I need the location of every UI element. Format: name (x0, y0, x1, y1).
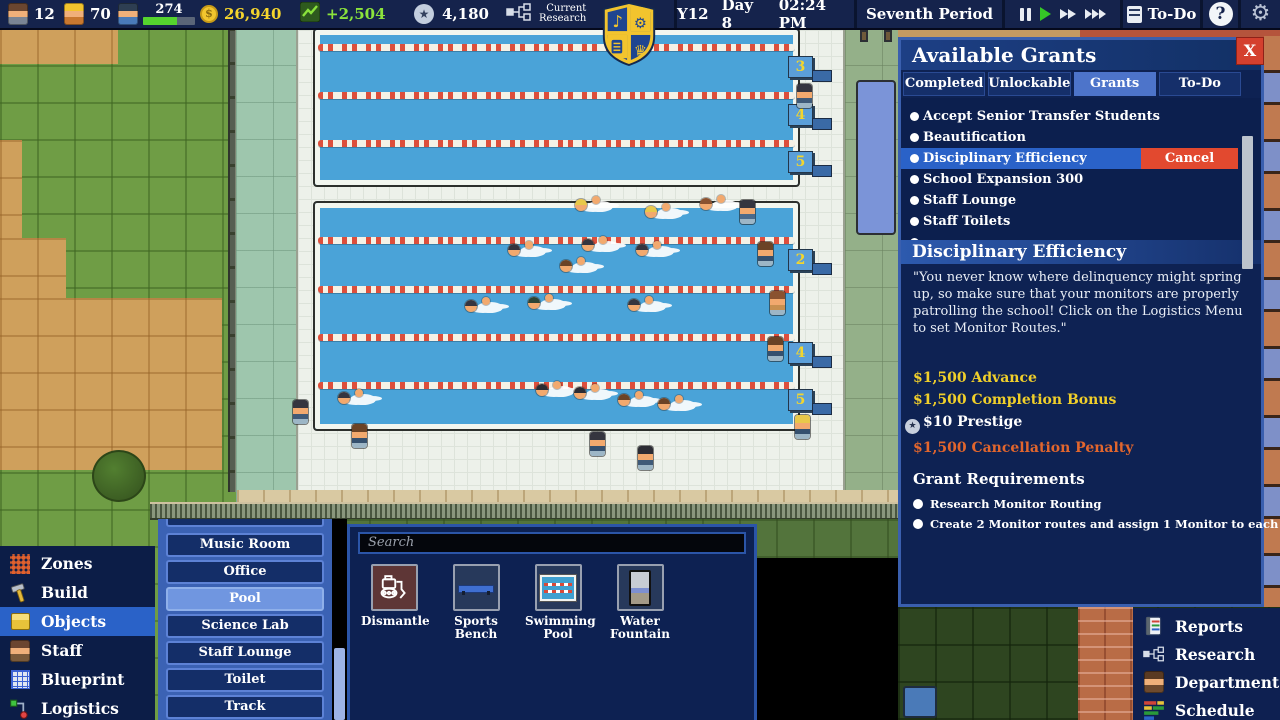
grant-cancellation-penalty: $1,500 Cancellation Penalty (913, 440, 1251, 456)
research-label: Current Research (539, 4, 586, 24)
time-label: 02:24 PM (779, 0, 854, 32)
objects-icon (8, 610, 32, 634)
research-icon (506, 3, 532, 25)
grants-list-scrollbar[interactable] (1242, 136, 1253, 269)
resource-builders: 70 (64, 0, 111, 28)
game-screen: 345245 12 70 274 (0, 0, 1280, 720)
todo-label: To-Do (1148, 5, 1197, 23)
pause-button[interactable] (1020, 8, 1031, 21)
grant-requirements-title: Grant Requirements (913, 470, 1255, 488)
standing-person (740, 200, 755, 224)
build-menu-item-zones[interactable]: Zones (0, 549, 155, 578)
grant-description: "You never know where delinquency might … (901, 264, 1261, 342)
swimmer (574, 386, 612, 401)
standing-person (797, 84, 812, 108)
reports-icon (1143, 615, 1165, 637)
system-menu-item-schedule[interactable]: Schedule (1133, 696, 1280, 720)
object-item-swimming-pool[interactable]: Swimming Pool (526, 564, 590, 641)
current-research[interactable]: Current Research (506, 0, 586, 28)
object-tiles: Dismantle Sports Bench Swimming Pool Wat… (350, 554, 754, 641)
fence-vertical (228, 28, 236, 492)
system-menu-item-research[interactable]: Research (1133, 640, 1280, 668)
dirt-patch (0, 140, 22, 240)
swimmer (560, 259, 598, 274)
grant-list-item[interactable]: Staff Toilets (901, 211, 1261, 232)
lane-number-plaque: 5 (788, 389, 813, 411)
lane-number-plaque: 2 (788, 249, 813, 271)
student-capacity-bar (143, 17, 195, 25)
build-icon (8, 581, 32, 605)
student-icon (118, 3, 138, 25)
department-icon (1143, 671, 1165, 693)
blueprint-icon (8, 668, 32, 692)
swimmer (528, 296, 566, 311)
dirt-patch (0, 238, 66, 300)
swimmer (645, 205, 683, 220)
svg-text:⚙: ⚙ (634, 16, 647, 32)
objects-panel: Search Dismantle Sports Bench Swimming P… (347, 524, 757, 720)
swimmer (575, 198, 613, 213)
lane-rope (318, 140, 795, 147)
fastest-forward-button[interactable] (1085, 9, 1106, 19)
bullet-icon (910, 217, 919, 226)
lane-rope (318, 92, 795, 99)
swimmer (636, 243, 674, 258)
schedule-icon (1143, 699, 1165, 720)
swimmer (658, 397, 696, 412)
resource-prestige: ★ 4,180 (414, 0, 489, 28)
room-menu-item-office[interactable]: Office (166, 560, 324, 584)
prop-box (903, 686, 937, 718)
build-menu-item-staff[interactable]: Staff (0, 636, 155, 665)
room-menu-scroll-thumb[interactable] (334, 648, 345, 720)
close-button[interactable]: X (1236, 37, 1264, 65)
system-menu-label: Reports (1175, 617, 1243, 636)
staff-icon (8, 639, 32, 663)
todo-button[interactable]: To-Do (1120, 0, 1200, 28)
cancel-grant-button[interactable]: Cancel (1141, 148, 1238, 169)
standing-person (758, 242, 773, 266)
gear-icon: ⚙ (1251, 1, 1271, 27)
todo-list-icon (1127, 6, 1142, 23)
grant-requirements: Grant Requirements Research Monitor Rout… (913, 470, 1255, 534)
poolside-floor (236, 28, 296, 506)
build-menu-item-objects[interactable]: Objects (0, 607, 155, 636)
grant-advance: $1,500 Advance (913, 370, 1251, 386)
starting-block (812, 165, 832, 177)
grant-list-item[interactable]: Staff Lounge (901, 190, 1261, 211)
standing-person (638, 446, 653, 470)
swimming-pool-icon (535, 564, 582, 611)
starting-block (812, 356, 832, 368)
swimmer (582, 238, 620, 253)
grants-panel: Available Grants X CompletedUnlockableGr… (898, 37, 1264, 607)
fast-forward-button[interactable] (1060, 9, 1076, 19)
standing-person (795, 415, 810, 439)
swimmer (628, 298, 666, 313)
requirement-item: Research Monitor Routing (913, 494, 1255, 514)
object-item-dismantle[interactable]: Dismantle (362, 564, 426, 641)
prestige-star-icon: ★ (414, 4, 434, 24)
grants-tab-grants[interactable]: Grants (1074, 72, 1156, 96)
swimmer (700, 197, 738, 212)
dirt-patch (0, 298, 222, 470)
period-label: Seventh Period (866, 5, 993, 23)
grant-rewards: $1,500 Advance $1,500 Completion Bonus ★… (913, 370, 1251, 462)
swimmer (536, 383, 574, 398)
bullet-icon (910, 175, 919, 184)
student-count: 274 (143, 3, 195, 17)
resource-students: 274 (118, 0, 195, 28)
help-icon: ? (1209, 2, 1233, 26)
bullet-icon (910, 196, 919, 205)
school-crest: ♪ ⚙ ♛ (598, 1, 660, 67)
prestige-amount: 4,180 (442, 5, 489, 23)
system-menu: ReportsResearchDepartmentSchedule (1133, 608, 1280, 720)
standing-person (770, 291, 785, 315)
system-menu-label: Schedule (1175, 701, 1255, 720)
sports-bench-icon (453, 564, 500, 611)
money-amount: 26,940 (224, 5, 281, 23)
lane-rope (318, 44, 795, 51)
grant-list-item[interactable]: CancelDisciplinary Efficiency (901, 148, 1141, 169)
income-chart-icon (300, 2, 320, 26)
lane-number-plaque: 3 (788, 56, 813, 78)
build-menu-item-blueprint[interactable]: Blueprint (0, 665, 155, 694)
teacher-icon (8, 3, 28, 25)
swimmer (338, 391, 376, 406)
build-menu-label: Build (41, 583, 88, 602)
grants-tab-unlockable[interactable]: Unlockable (988, 72, 1070, 96)
grants-tab-completed[interactable]: Completed (903, 72, 985, 96)
build-menu-label: Objects (41, 612, 106, 631)
build-menu: ZonesBuildObjectsStaffBlueprintLogistics (0, 546, 155, 720)
bench-leg (884, 30, 892, 42)
bullet-icon (910, 238, 919, 240)
swimming-pool-top[interactable] (313, 28, 800, 187)
year-label: Y12 (677, 5, 709, 23)
bullet-icon (910, 154, 919, 163)
room-menu-scroll-track (332, 519, 347, 720)
room-menu-item-track[interactable]: Track (166, 695, 324, 719)
teacher-count: 12 (34, 5, 55, 23)
build-menu-label: Blueprint (41, 670, 124, 689)
student-capacity-fill (143, 17, 177, 25)
bullet-icon (910, 133, 919, 142)
grants-panel-title: Available Grants (901, 40, 1261, 70)
lane-rope (318, 237, 795, 244)
lane-rope (318, 286, 795, 293)
room-menu-item-pool[interactable]: Pool (166, 587, 324, 611)
zones-icon (8, 552, 32, 576)
system-menu-label: Department (1175, 673, 1279, 692)
swimmer (618, 393, 656, 408)
grants-tabs: CompletedUnlockableGrantsTo-Do (901, 70, 1261, 98)
room-category-menu: Music RoomOfficePoolScience LabStaff Lou… (158, 519, 332, 720)
lane-number-plaque: 5 (788, 151, 813, 173)
starting-block (812, 263, 832, 275)
settings-button[interactable]: ⚙ (1238, 0, 1280, 28)
resource-teachers: 12 (8, 0, 55, 28)
search-input[interactable]: Search (358, 532, 746, 554)
income-delta: +2,504 (326, 5, 386, 23)
build-menu-label: Staff (41, 641, 82, 660)
brick-wall (1078, 607, 1133, 720)
room-menu-item-staff-lounge[interactable]: Staff Lounge (166, 641, 324, 665)
day-label: Day 8 (722, 0, 766, 32)
grant-list-item-partial[interactable] (901, 232, 1261, 240)
grant-list-item[interactable]: School Expansion 300 (901, 169, 1261, 190)
tree (92, 450, 146, 502)
swimmer (465, 299, 503, 314)
grant-list-item[interactable]: Accept Senior Transfer Students (901, 106, 1261, 127)
dismantle-icon (371, 564, 418, 611)
student-capacity: 274 (143, 3, 195, 25)
standing-person (768, 337, 783, 361)
system-menu-label: Research (1175, 645, 1255, 664)
panel-gap (757, 558, 898, 720)
requirement-item: Create 2 Monitor routes and assign 1 Mon… (913, 514, 1255, 534)
grant-prestige: ★$10 Prestige (913, 414, 1251, 434)
starting-block (812, 118, 832, 130)
object-item-water-fountain[interactable]: Water Fountain (608, 564, 672, 641)
grant-completion-bonus: $1,500 Completion Bonus (913, 392, 1251, 408)
bench-leg (860, 30, 868, 42)
swimmer (508, 243, 546, 258)
poolside-bench (856, 80, 896, 235)
room-menu-item-science-lab[interactable]: Science Lab (166, 614, 324, 638)
grants-tab-to-do[interactable]: To-Do (1159, 72, 1241, 96)
coin-icon: $ (200, 5, 218, 23)
bullet-icon (913, 519, 923, 529)
build-menu-label: Zones (41, 554, 93, 573)
help-button[interactable]: ? (1200, 0, 1238, 28)
build-menu-item-logistics[interactable]: Logistics (0, 694, 155, 720)
builder-icon (64, 3, 84, 25)
build-menu-label: Logistics (41, 699, 119, 718)
grant-list-item[interactable]: Beautification (901, 127, 1261, 148)
svg-text:♪: ♪ (613, 12, 624, 31)
standing-person (293, 400, 308, 424)
standing-person (590, 432, 605, 456)
play-button[interactable] (1040, 7, 1051, 21)
room-menu-item-toilet[interactable]: Toilet (166, 668, 324, 692)
clock: Y12 Day 8 02:24 PM (674, 0, 854, 28)
speed-controls (1002, 0, 1120, 28)
lane-number-plaque: 4 (788, 342, 813, 364)
object-item-sports-bench[interactable]: Sports Bench (444, 564, 508, 641)
build-menu-item-build[interactable]: Build (0, 578, 155, 607)
system-menu-item-department[interactable]: Department (1133, 668, 1280, 696)
standing-person (352, 424, 367, 448)
starting-block (812, 403, 832, 415)
bullet-icon (910, 112, 919, 121)
water-fountain-icon (617, 564, 664, 611)
grants-list: Accept Senior Transfer StudentsBeautific… (901, 98, 1261, 240)
room-menu-item-music-room[interactable]: Music Room (166, 533, 324, 557)
bullet-icon (913, 499, 923, 509)
room-menu-item-partial[interactable] (166, 519, 324, 527)
prestige-star-icon: ★ (905, 419, 920, 434)
period-indicator: Seventh Period (854, 0, 1002, 28)
resource-income: +2,504 (300, 0, 386, 28)
builder-count: 70 (90, 5, 111, 23)
starting-block (812, 70, 832, 82)
grant-detail-title: Disciplinary Efficiency (901, 240, 1261, 264)
lane-rope (318, 334, 795, 341)
resource-money: $ 26,940 (200, 0, 281, 28)
dirt-patch (0, 28, 118, 64)
research-icon (1143, 643, 1165, 665)
fence-horizontal (150, 502, 903, 520)
system-menu-item-reports[interactable]: Reports (1133, 612, 1280, 640)
logistics-icon (8, 697, 32, 720)
